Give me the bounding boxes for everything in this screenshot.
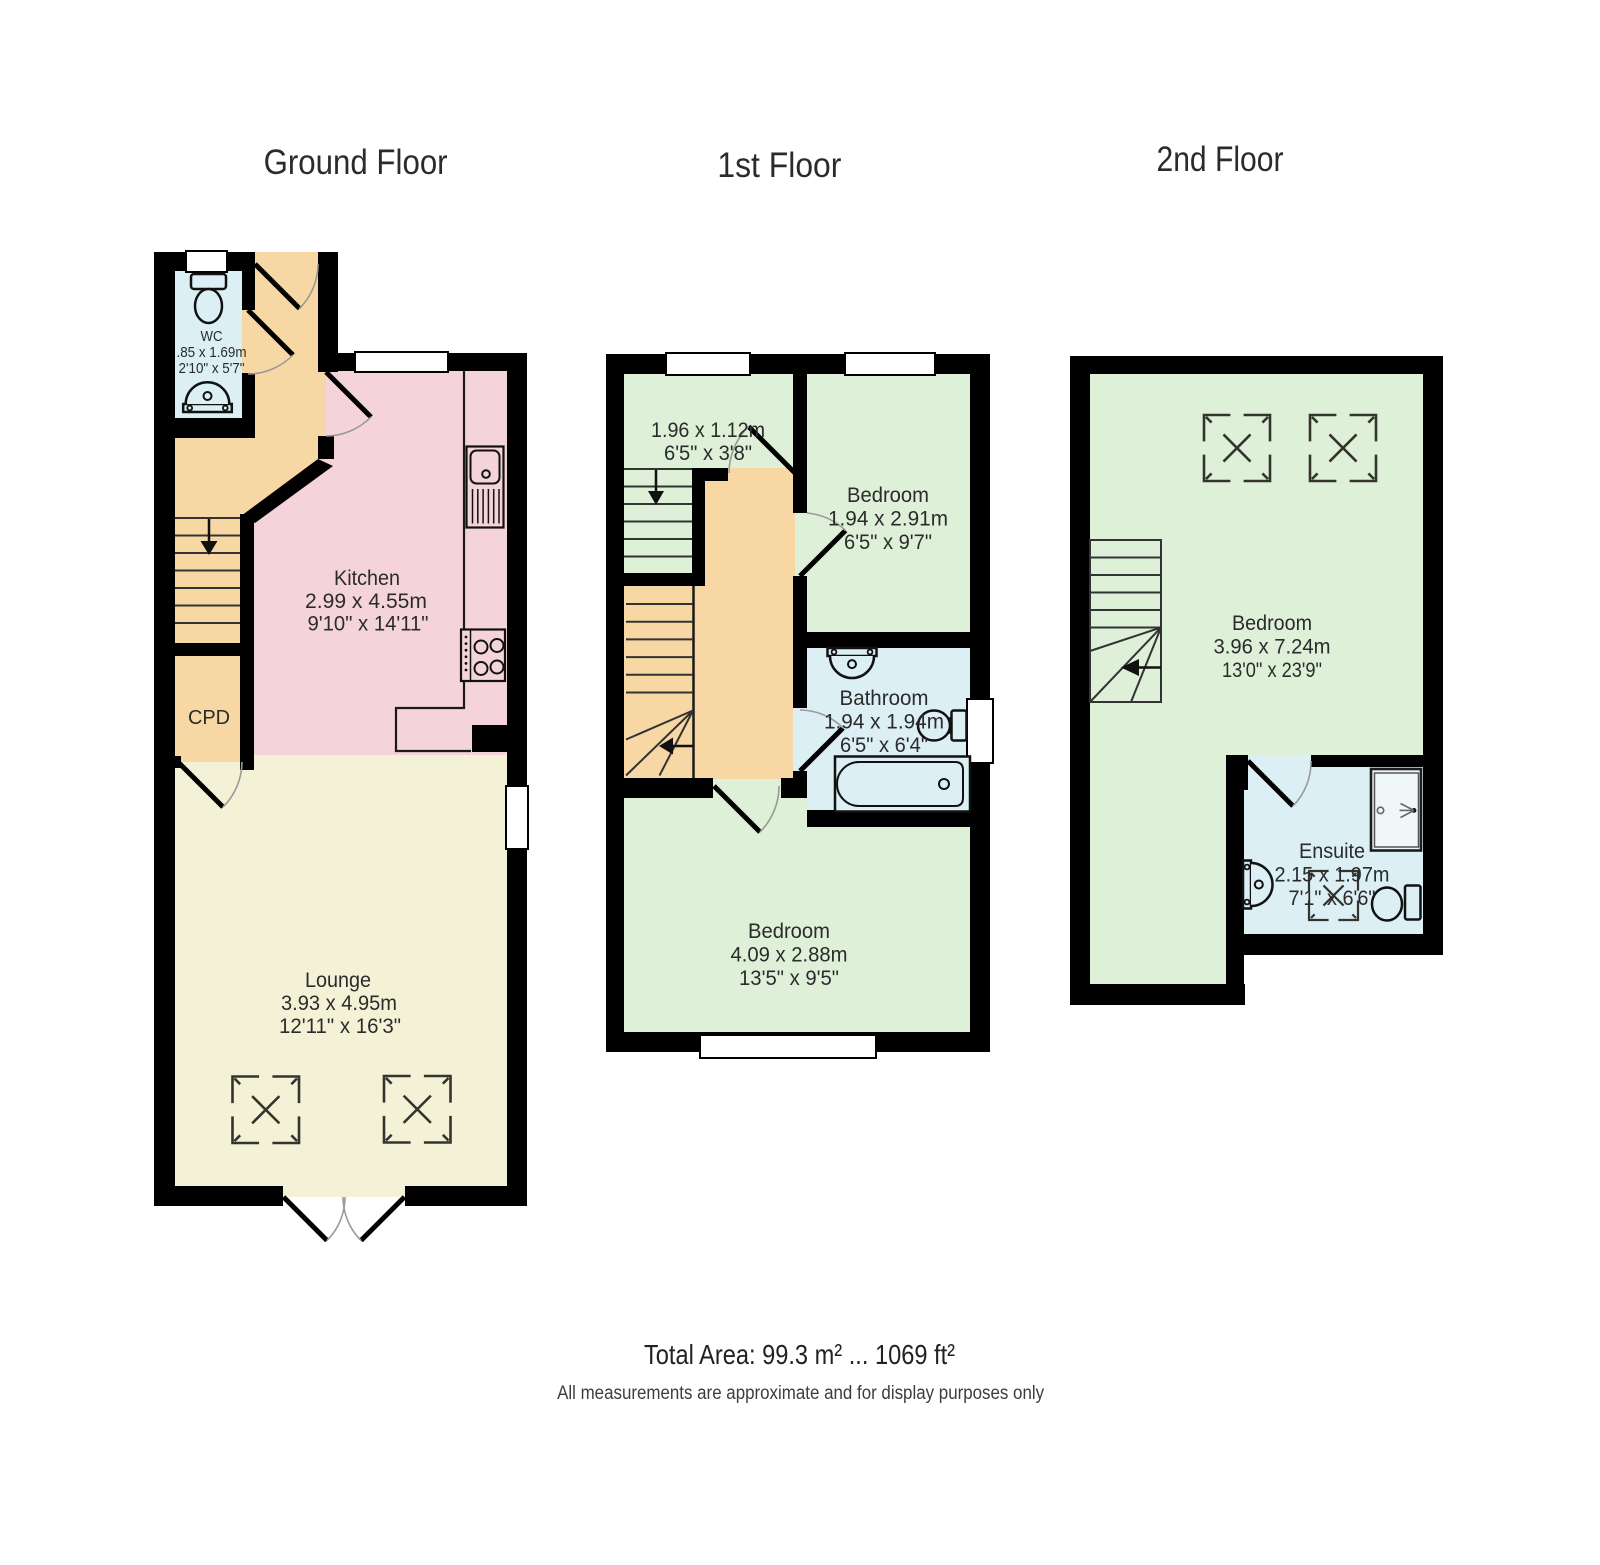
svg-text:All measurements are approxima: All measurements are approximate and for… (557, 1382, 1044, 1404)
svg-text:13'0" x 23'9": 13'0" x 23'9" (1222, 659, 1322, 682)
svg-text:Lounge: Lounge (305, 969, 371, 992)
svg-text:2nd Floor: 2nd Floor (1157, 140, 1284, 179)
svg-text:2.99 x 4.55m: 2.99 x 4.55m (305, 590, 427, 613)
svg-text:WC: WC (201, 328, 223, 345)
svg-text:Ground Floor: Ground Floor (264, 143, 448, 182)
svg-text:3.96 x 7.24m: 3.96 x 7.24m (1214, 636, 1331, 659)
svg-text:13'5" x 9'5": 13'5" x 9'5" (739, 967, 839, 990)
svg-text:7'1" x 6'6": 7'1" x 6'6" (1289, 887, 1376, 910)
svg-text:Kitchen: Kitchen (334, 567, 400, 590)
svg-text:.85 x 1.69m: .85 x 1.69m (177, 344, 247, 361)
svg-text:6'5" x 9'7": 6'5" x 9'7" (844, 531, 932, 554)
svg-text:4.09 x 2.88m: 4.09 x 2.88m (731, 944, 848, 967)
svg-text:2'10" x 5'7": 2'10" x 5'7" (179, 360, 245, 377)
svg-text:Ensuite: Ensuite (1299, 840, 1365, 863)
svg-text:1st Floor: 1st Floor (717, 146, 841, 185)
svg-text:1.96 x 1.12m: 1.96 x 1.12m (651, 419, 765, 442)
svg-text:12'11" x 16'3": 12'11" x 16'3" (279, 1015, 401, 1038)
svg-text:1.94 x 1.94m: 1.94 x 1.94m (824, 711, 944, 734)
svg-text:Total Area: 99.3 m² ... 1069 f: Total Area: 99.3 m² ... 1069 ft² (644, 1339, 955, 1370)
svg-text:9'10" x 14'11": 9'10" x 14'11" (308, 613, 429, 636)
svg-text:1.94 x 2.91m: 1.94 x 2.91m (828, 508, 948, 531)
svg-text:3.93 x 4.95m: 3.93 x 4.95m (281, 992, 397, 1015)
svg-text:CPD: CPD (188, 707, 230, 729)
svg-text:Bedroom: Bedroom (847, 484, 929, 507)
svg-text:6'5" x 6'4": 6'5" x 6'4" (840, 734, 928, 757)
svg-text:6'5" x 3'8": 6'5" x 3'8" (664, 442, 752, 465)
svg-text:Bedroom: Bedroom (1232, 612, 1312, 635)
svg-text:2.15 x 1.97m: 2.15 x 1.97m (1275, 864, 1390, 887)
svg-text:Bedroom: Bedroom (748, 920, 830, 943)
svg-text:Bathroom: Bathroom (840, 687, 929, 710)
